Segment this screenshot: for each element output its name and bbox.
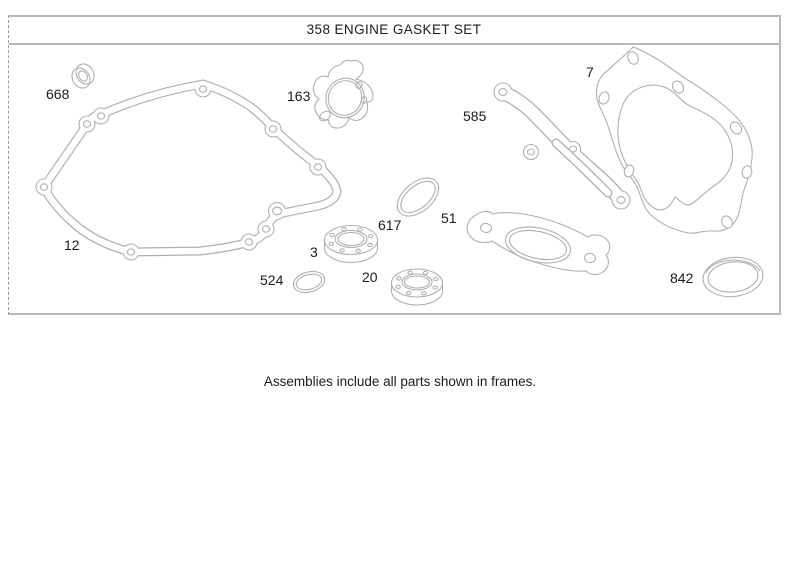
o-ring-842-drawing xyxy=(701,254,765,299)
oil-seal-3-drawing xyxy=(325,226,378,263)
oil-seal-20-drawing xyxy=(392,269,443,305)
o-ring-617-drawing xyxy=(390,170,445,223)
exhaust-gasket-51-drawing xyxy=(467,211,610,274)
assemblies-footnote: Assemblies include all parts shown in fr… xyxy=(0,374,800,389)
part-label-524: 524 xyxy=(260,273,283,288)
part-label-51: 51 xyxy=(441,211,457,226)
part-label-842: 842 xyxy=(670,271,693,286)
part-label-585: 585 xyxy=(463,109,486,124)
part-label-12: 12 xyxy=(64,238,80,253)
breather-gasket-585-drawing xyxy=(494,83,630,209)
part-label-3: 3 xyxy=(310,245,318,260)
part-label-7: 7 xyxy=(586,65,594,80)
part-label-668: 668 xyxy=(46,87,69,102)
grommet-seal-668-drawing xyxy=(68,61,97,92)
o-ring-524-drawing xyxy=(291,268,327,296)
part-label-163: 163 xyxy=(287,89,310,104)
part-label-617: 617 xyxy=(378,218,401,233)
sump-gasket-12-drawing xyxy=(36,81,337,260)
part-label-20: 20 xyxy=(362,270,378,285)
carburetor-gasket-163-drawing xyxy=(313,60,373,128)
parts-diagram-page: 358 ENGINE GASKET SET xyxy=(0,0,800,564)
